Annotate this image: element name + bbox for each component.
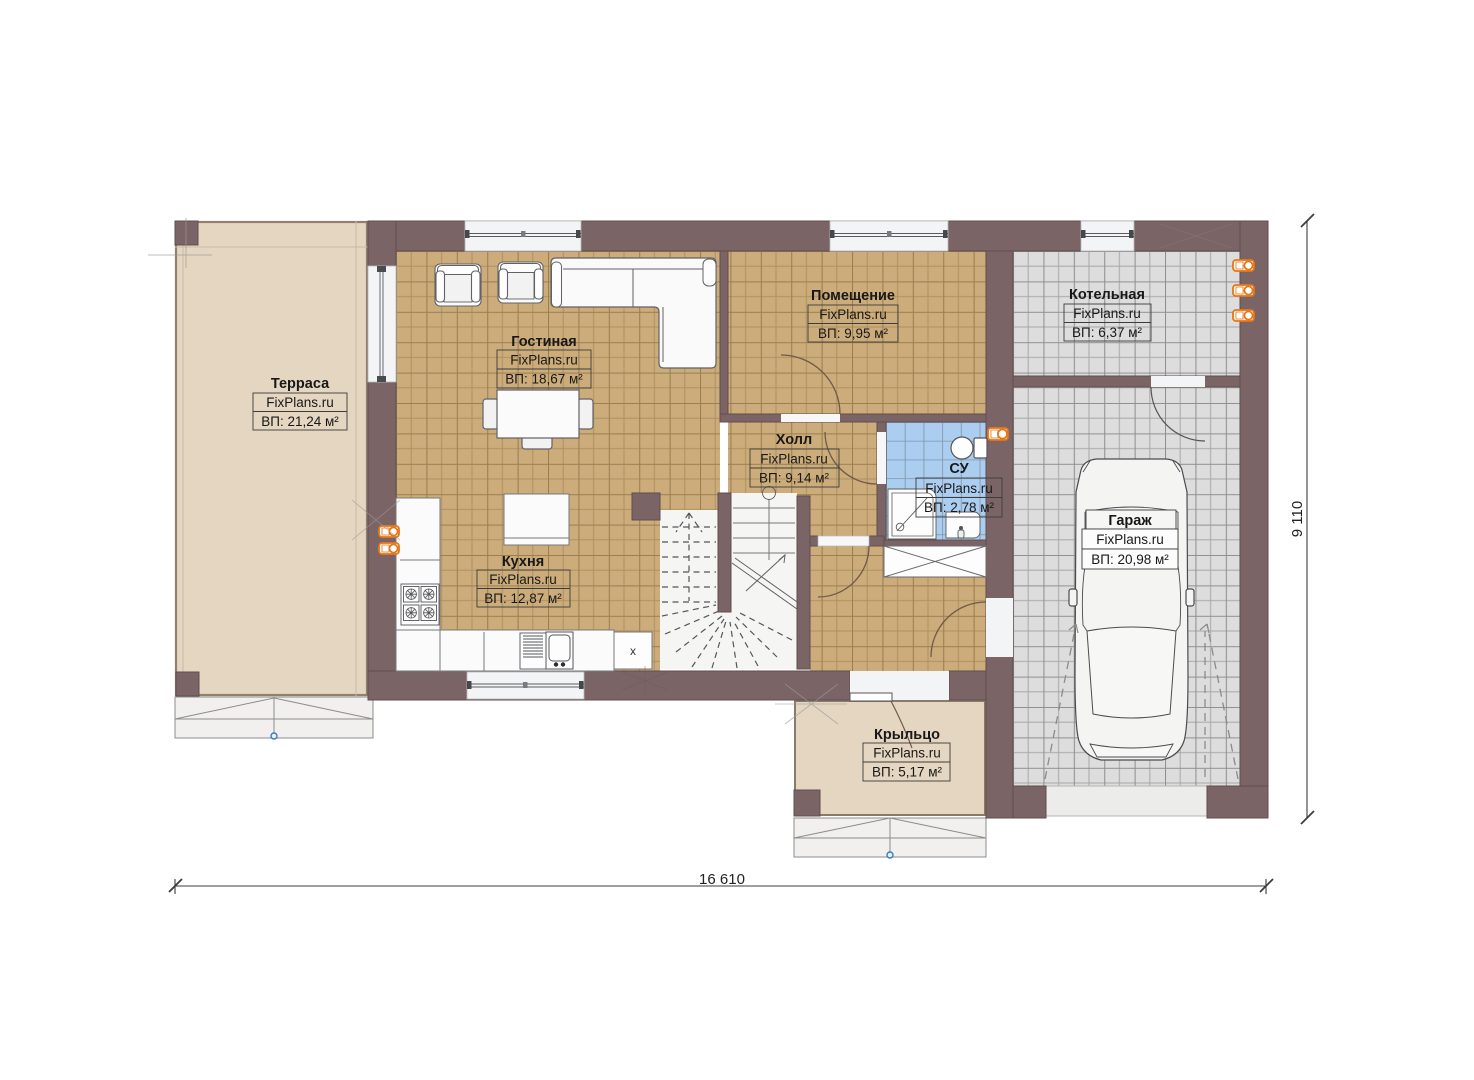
svg-text:FixPlans.ru: FixPlans.ru [510,353,578,368]
svg-text:FixPlans.ru: FixPlans.ru [489,572,557,587]
svg-text:Кухня: Кухня [502,554,544,570]
svg-text:16 610: 16 610 [699,871,745,888]
svg-text:ВП: 6,37 м²: ВП: 6,37 м² [1072,325,1143,340]
svg-text:ВП: 9,95 м²: ВП: 9,95 м² [818,326,889,341]
svg-text:FixPlans.ru: FixPlans.ru [760,452,828,467]
svg-text:x: x [630,644,636,658]
svg-text:FixPlans.ru: FixPlans.ru [1096,532,1164,547]
svg-text:ВП: 9,14 м²: ВП: 9,14 м² [759,471,830,486]
svg-text:FixPlans.ru: FixPlans.ru [1073,306,1141,321]
svg-text:ВП: 2,78 м²: ВП: 2,78 м² [924,500,995,515]
svg-text:ВП: 12,87 м²: ВП: 12,87 м² [484,591,562,606]
svg-text:Помещение: Помещение [811,288,895,304]
svg-text:Терраса: Терраса [271,376,330,392]
svg-text:Крыльцо: Крыльцо [874,727,940,743]
svg-text:Котельная: Котельная [1069,287,1145,303]
svg-text:FixPlans.ru: FixPlans.ru [873,746,941,761]
svg-text:ВП: 5,17 м²: ВП: 5,17 м² [872,765,943,780]
svg-text:FixPlans.ru: FixPlans.ru [925,481,993,496]
svg-text:Холл: Холл [776,432,812,448]
svg-text:Гараж: Гараж [1108,513,1152,529]
svg-text:FixPlans.ru: FixPlans.ru [266,395,334,410]
svg-text:ВП: 20,98 м²: ВП: 20,98 м² [1091,552,1169,567]
svg-text:FixPlans.ru: FixPlans.ru [819,307,887,322]
svg-text:ВП: 18,67 м²: ВП: 18,67 м² [505,372,583,387]
svg-text:9 110: 9 110 [1289,501,1306,537]
svg-text:ВП: 21,24 м²: ВП: 21,24 м² [261,414,339,429]
svg-text:СУ: СУ [949,461,969,477]
svg-text:Гостиная: Гостиная [511,334,577,350]
